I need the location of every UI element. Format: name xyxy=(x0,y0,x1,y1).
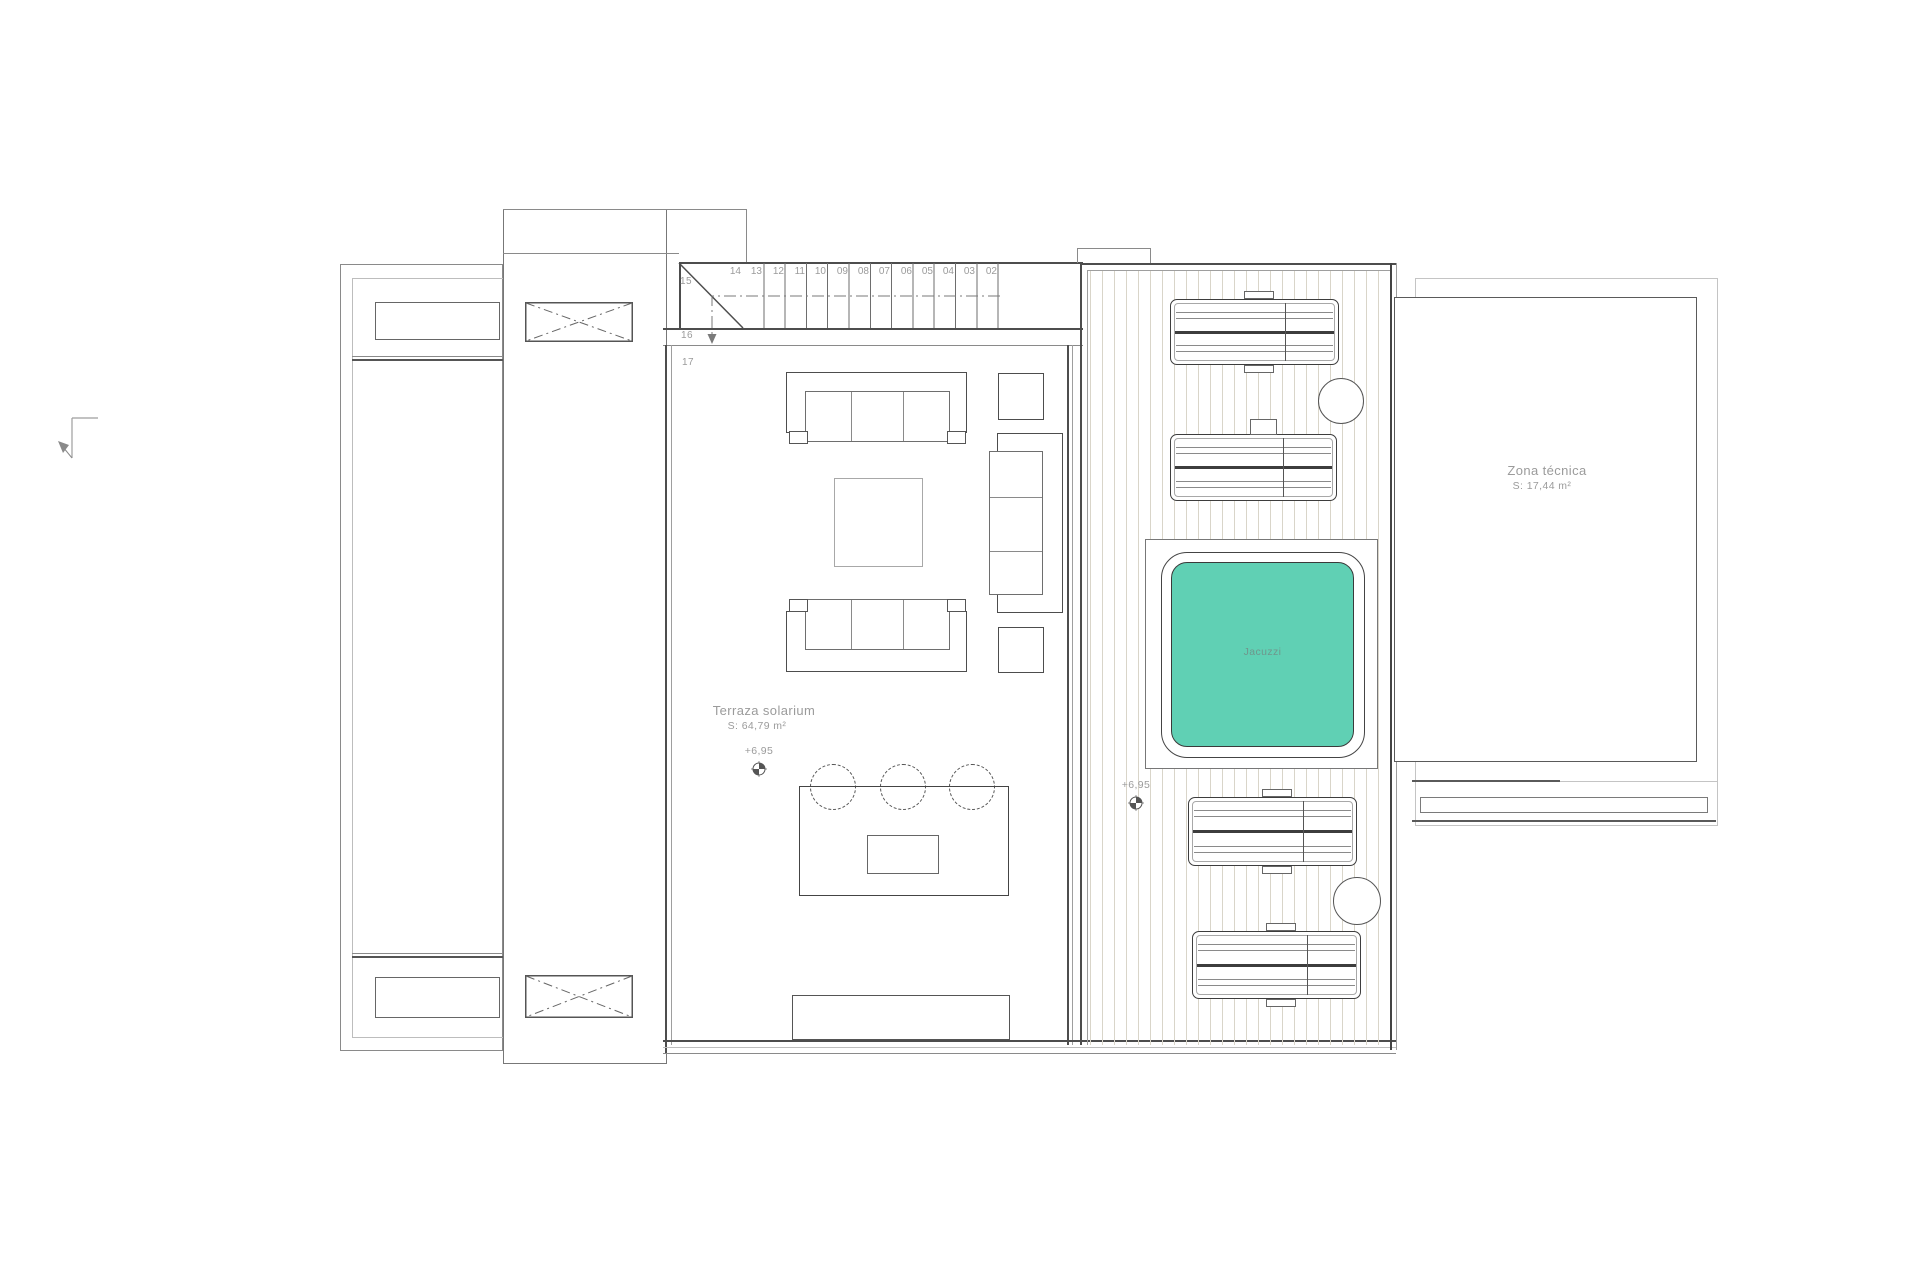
terrace-name-label: Terraza solarium xyxy=(684,703,844,718)
tech-zone-room xyxy=(1394,297,1697,762)
terrace-wall-left-inner xyxy=(671,345,672,1045)
stair-landing-edge xyxy=(663,328,1083,330)
deck-round-table xyxy=(1333,877,1381,925)
deck-wall-top-inner xyxy=(1087,270,1390,271)
south-wall-inner xyxy=(663,1053,1396,1054)
stair-tread-number: 03 xyxy=(956,266,975,277)
west-wing-outline xyxy=(340,264,503,1051)
stair-tread-number: 06 xyxy=(893,266,912,277)
deck-round-table xyxy=(1318,378,1364,424)
deck-step-side xyxy=(1150,248,1151,263)
west-wing-top-box xyxy=(375,302,500,340)
west-wing-divider-top xyxy=(352,356,503,361)
stair-tread-number: 04 xyxy=(935,266,954,277)
center-column-top-line xyxy=(503,253,679,254)
deck-wall-right xyxy=(1390,263,1392,1050)
stair-tread-number: 07 xyxy=(871,266,890,277)
sofa-bottom-seat xyxy=(805,599,950,650)
west-wing-inner-top xyxy=(352,278,503,279)
deck-wall-left-inner xyxy=(1087,270,1088,1045)
deck-step-edge xyxy=(1077,248,1150,249)
side-table-top xyxy=(998,373,1044,420)
coffee-table xyxy=(834,478,923,567)
tech-zone-area-label: S: 17,44 m² xyxy=(1462,480,1622,492)
sofa-top-foot-left xyxy=(789,431,808,444)
stair-tread-number: 02 xyxy=(978,266,997,277)
sofa-bottom-foot-right xyxy=(947,599,966,612)
sofa-bottom-foot-left xyxy=(789,599,808,612)
stair-left-edge xyxy=(679,262,681,328)
section-arrow-icon xyxy=(48,405,108,465)
stair-landing-number: 16 xyxy=(681,330,693,341)
center-column-outline xyxy=(503,209,667,1064)
deck-wall-left xyxy=(1080,263,1082,1045)
upper-boundary-line xyxy=(503,209,747,210)
west-wing-divider-bottom xyxy=(352,953,503,958)
sun-lounger xyxy=(1170,299,1339,365)
stair-tread-number: 13 xyxy=(743,266,762,277)
sun-lounger xyxy=(1170,434,1337,501)
stair-tread-number: 10 xyxy=(807,266,826,277)
l-sofa-cushion-line xyxy=(990,497,1042,498)
sofa-top-seat xyxy=(805,391,950,442)
south-wall-mid xyxy=(663,1047,1396,1048)
bar-sink xyxy=(867,835,939,874)
stair-landing-inner xyxy=(663,345,1083,346)
upper-boundary-return xyxy=(746,209,747,263)
sofa-bottom-cushion-line xyxy=(903,600,904,649)
tech-zone-name-label: Zona técnica xyxy=(1467,463,1627,478)
tech-zone-bottom-line xyxy=(1412,820,1716,822)
terrace-level-label: +6,95 xyxy=(729,745,789,757)
stair-tread-number: 05 xyxy=(914,266,933,277)
terrace-wall-right xyxy=(1067,345,1069,1045)
west-wing-inner-left xyxy=(352,278,353,1038)
l-sofa-seat xyxy=(989,451,1043,595)
tech-zone-lower-edge xyxy=(1412,780,1560,782)
terrace-wall-right-inner xyxy=(1072,345,1073,1045)
terrace-bench xyxy=(792,995,1010,1040)
stair-tread-number: 09 xyxy=(829,266,848,277)
sofa-top-cushion-line xyxy=(903,392,904,441)
sofa-bottom-cushion-line xyxy=(851,600,852,649)
l-sofa-cushion-line xyxy=(990,551,1042,552)
deck-step-side xyxy=(1077,248,1078,263)
terrace-area-label: S: 64,79 m² xyxy=(677,720,837,732)
stair-lower-number: 17 xyxy=(682,357,694,368)
sofa-top-foot-right xyxy=(947,431,966,444)
west-wing-inner-bottom xyxy=(352,1037,503,1038)
stair-winder-number: 15 xyxy=(680,276,692,287)
terrace-wall-left xyxy=(665,345,667,1053)
stair-tread-number: 11 xyxy=(786,266,805,277)
stair-tread-number: 12 xyxy=(765,266,784,277)
side-table-bottom xyxy=(998,627,1044,673)
sofa-top-cushion-line xyxy=(851,392,852,441)
sun-lounger xyxy=(1192,931,1361,999)
stair-tread-number: 08 xyxy=(850,266,869,277)
west-wing-bottom-box xyxy=(375,977,500,1018)
floor-plan: 14 13 12 11 10 09 08 07 06 05 04 03 02 1… xyxy=(0,0,1920,1280)
stair-tread-number: 14 xyxy=(722,266,741,277)
deck-level-label: +6,95 xyxy=(1106,779,1166,791)
tech-zone-vent-strip xyxy=(1420,797,1708,813)
deck-wall-top xyxy=(1080,263,1396,265)
sun-lounger xyxy=(1188,797,1357,866)
tech-zone-lower-edge-light xyxy=(1560,781,1718,782)
level-marker-icon xyxy=(751,761,767,777)
jacuzzi-label: Jacuzzi xyxy=(1171,646,1354,658)
